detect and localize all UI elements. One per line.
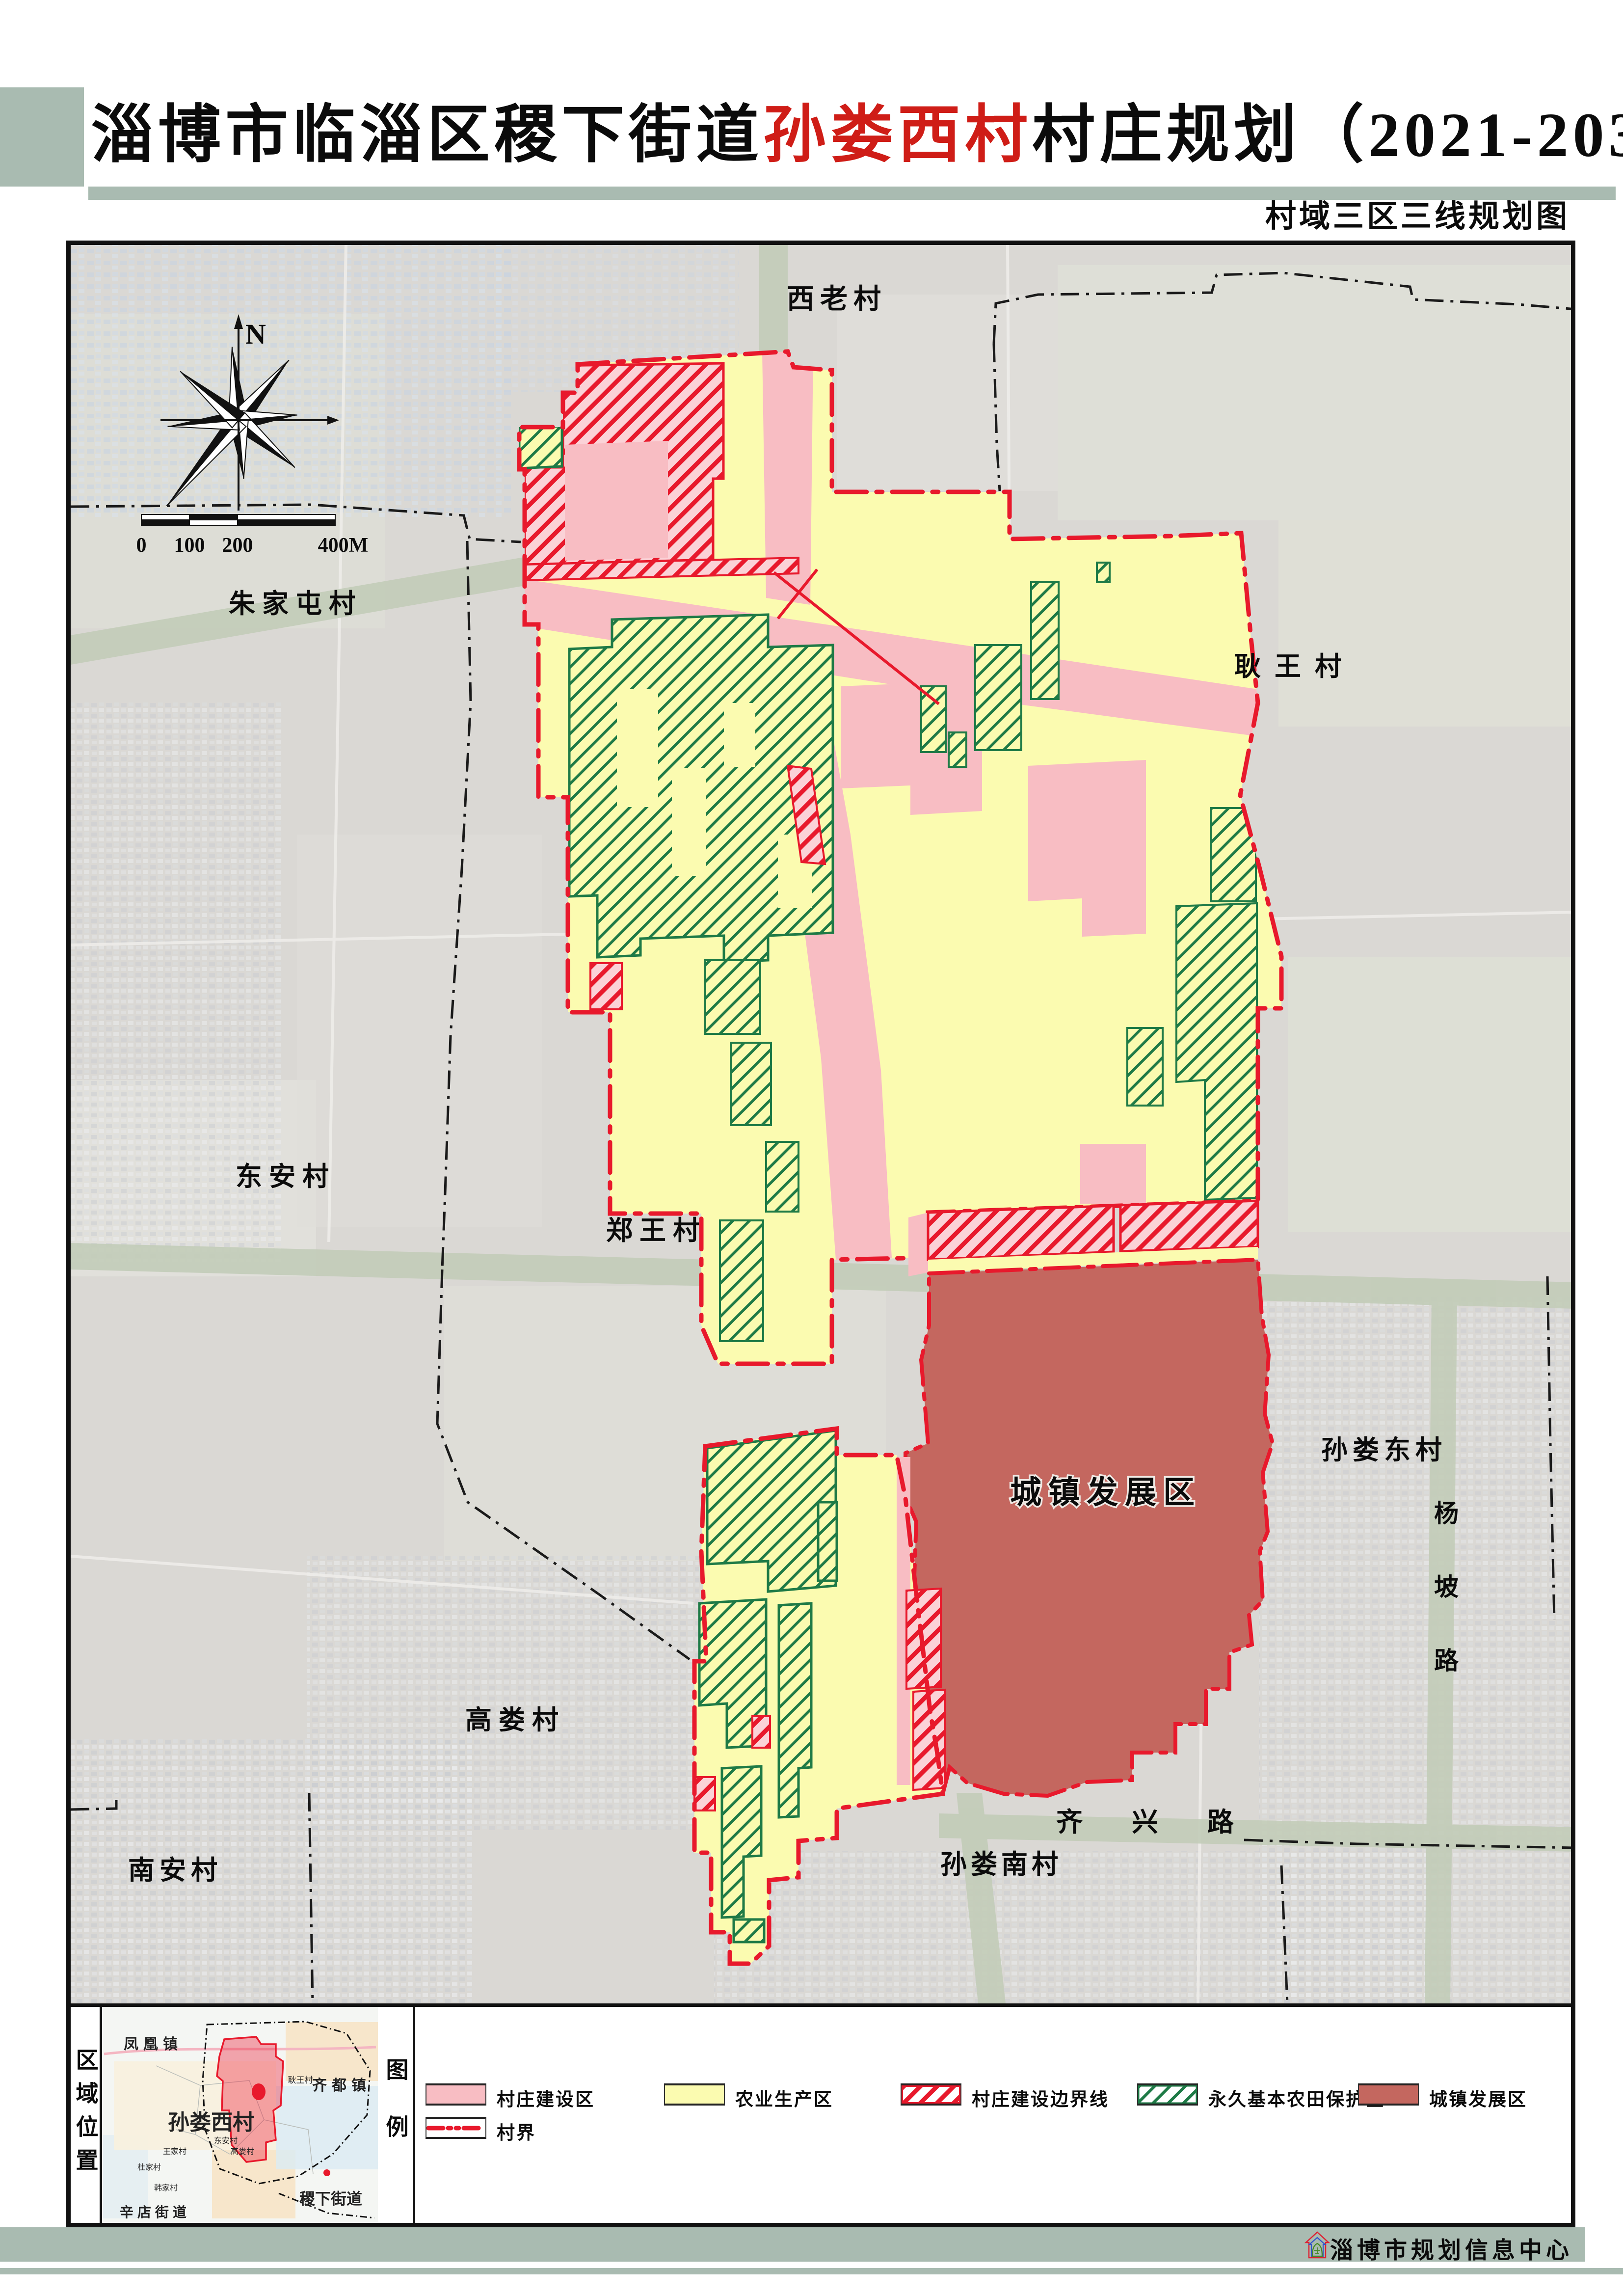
legend-label: 城镇发展区: [1429, 2084, 1527, 2111]
scale-tick: 200: [222, 534, 253, 557]
inset-map-svg: 凤凰镇 齐都镇 孙娄西村 稷下街道 辛店街道 耿王村 东安村 王家村 杜家村 韩…: [102, 2007, 378, 2223]
legend-title: 图例: [379, 2058, 412, 2172]
label-yangpo-2: 坡: [1434, 1573, 1459, 1601]
legend-label: 农业生产区: [735, 2084, 833, 2111]
label-gaoloucun: 高娄村: [465, 1705, 565, 1735]
legend-label: 村庄建设区: [497, 2084, 595, 2111]
footer-bar: 淄博市规划信息中心: [0, 2227, 1585, 2262]
planning-center-logo-icon: [1304, 2231, 1330, 2262]
map-subtitle: 村域三区三线规划图: [1265, 191, 1570, 236]
bottom-panel: 区域位置: [71, 2003, 1571, 2223]
zone-village-construction: [565, 441, 668, 561]
header-sage-square: [0, 87, 84, 187]
legend-swatch-town-development: [1358, 2083, 1419, 2106]
zone-village-construction: [1080, 1144, 1146, 1204]
inset-label-dujia: 杜家村: [137, 2163, 161, 2172]
page-title: 淄博市临淄区稷下街道孙娄西村村庄规划（2021-2035年）: [91, 82, 1617, 188]
label-xilaocun: 西老村: [787, 284, 887, 315]
label-zhujiatuncun: 朱家屯村: [229, 589, 362, 619]
inset-village-dot: [252, 2083, 266, 2100]
label-sunloudongcun: 孙娄东村: [1321, 1435, 1447, 1465]
label-yangpo-3: 路: [1434, 1647, 1459, 1675]
inset-label-hanjia: 韩家村: [154, 2184, 178, 2192]
title-prefix: 淄博市临淄区稷下街道: [91, 100, 763, 170]
legend-swatch-farmland: [1137, 2083, 1198, 2106]
planning-map-svg: N 0 100 200 400M 西老村 朱家屯村 耿王村 东安村 郑王村 城镇…: [71, 245, 1571, 2003]
legend-swatch-agriculture: [664, 2083, 725, 2106]
label-qixinglu: 齐兴路: [1056, 1808, 1283, 1837]
legend-label-boundary: 村界: [497, 2118, 536, 2144]
farmland-hatch: [519, 426, 562, 468]
label-yangpo-1: 杨: [1434, 1500, 1459, 1527]
pink-corner: [908, 1213, 928, 1276]
scale-tick: 400M: [318, 534, 369, 557]
label-sunlounancun: 孙娄南村: [940, 1850, 1062, 1879]
label-zhengwangcun: 郑王村: [606, 1216, 706, 1245]
inset-label-wangjia: 王家村: [163, 2147, 186, 2156]
legend-swatch-village-boundary: [426, 2117, 486, 2139]
footer-credit: 淄博市规划信息中心: [1330, 2231, 1573, 2265]
inset-jixia-dot: [323, 2169, 330, 2176]
region-location-cell: 区域位置: [71, 2007, 102, 2223]
construction-boundary-hatch: [1120, 1201, 1258, 1251]
scale-tick: 100: [174, 534, 205, 557]
label-town-development: 城镇发展区: [1010, 1475, 1201, 1510]
inset-label-gaolou: 高娄村: [231, 2147, 254, 2156]
inset-label-jixia: 稷下街道: [299, 2190, 362, 2208]
inset-label-gengwang: 耿王村: [288, 2076, 313, 2085]
legend-cell: 村庄建设区 农业生产区 村庄建设边界线 永久基本农田保护区 城镇发展区 村界: [415, 2007, 1571, 2223]
legend-label: 村庄建设边界线: [972, 2084, 1109, 2111]
legend-swatch-construction-boundary: [901, 2083, 961, 2106]
label-dongancun: 东安村: [236, 1162, 336, 1191]
inset-map-cell: 凤凰镇 齐都镇 孙娄西村 稷下街道 辛店街道 耿王村 东安村 王家村 杜家村 韩…: [102, 2007, 378, 2223]
construction-boundary-hatch: [928, 1206, 1114, 1260]
title-village-name: 孙娄西村: [763, 100, 1032, 170]
main-map: N 0 100 200 400M 西老村 朱家屯村 耿王村 东安村 郑王村 城镇…: [71, 245, 1571, 2003]
inset-label-qidu: 齐都镇: [312, 2078, 371, 2094]
footer-bar-thin: [0, 2268, 1623, 2274]
title-suffix: 村庄规划（2021-2035年）: [1032, 100, 1623, 170]
inset-label-fenghuang: 凤凰镇: [124, 2036, 183, 2053]
scale-tick: 0: [136, 534, 147, 557]
legend-title-cell: 图例: [378, 2007, 415, 2223]
label-nanancun: 南安村: [128, 1856, 222, 1885]
inset-label-xindian: 辛店街道: [120, 2204, 190, 2220]
label-gengwangcun: 耿王村: [1234, 652, 1355, 681]
inset-label-dongan: 东安村: [214, 2136, 238, 2145]
legend-swatch-village-construction: [426, 2083, 486, 2106]
map-frame: N 0 100 200 400M 西老村 朱家屯村 耿王村 东安村 郑王村 城镇…: [66, 241, 1575, 2227]
inset-label-sunlouxi: 孙娄西村: [168, 2110, 254, 2134]
region-location-title: 区域位置: [69, 2048, 102, 2182]
north-letter: N: [245, 318, 266, 350]
